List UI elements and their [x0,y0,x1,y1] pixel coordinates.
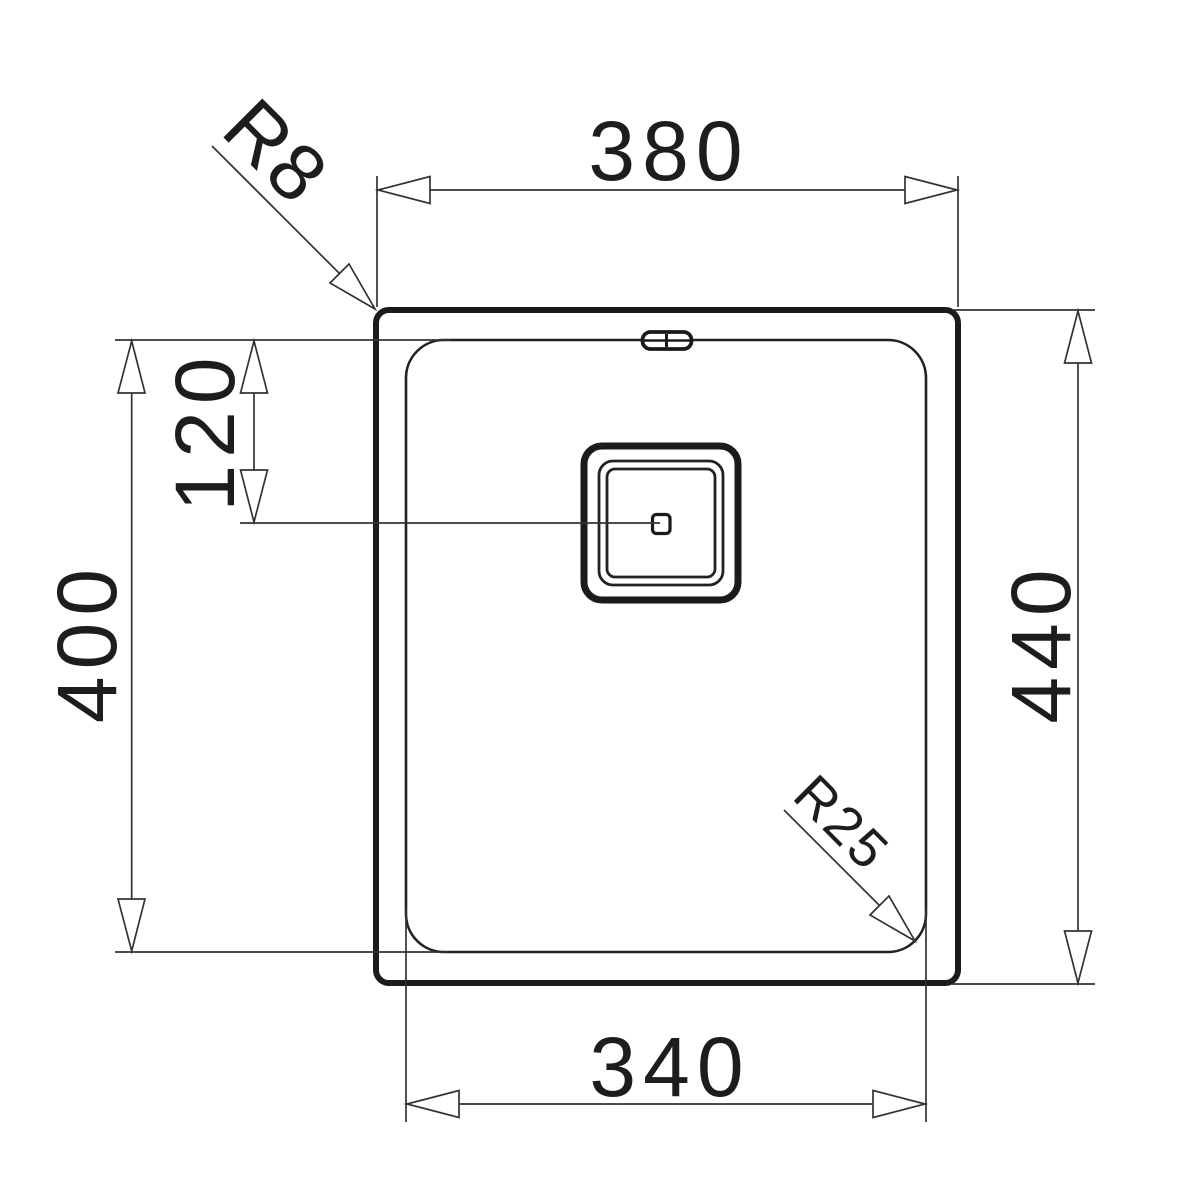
svg-text:340: 340 [589,1020,750,1114]
svg-text:120: 120 [158,350,252,511]
svg-text:440: 440 [994,562,1088,723]
svg-text:380: 380 [588,104,749,198]
svg-text:400: 400 [40,562,134,723]
